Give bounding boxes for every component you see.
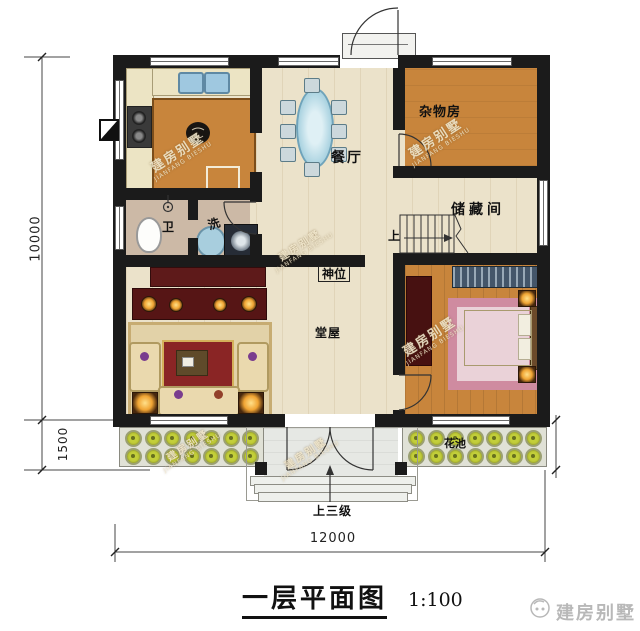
room-label-toilet: 卫 — [162, 221, 174, 233]
floor-plan: 餐厅 杂物房 储藏间 堂屋 神位 卫 洗 花池 上 上三级 10000 1500… — [0, 0, 640, 631]
brand-logo-text: 建房别墅 — [556, 599, 636, 625]
entry-steps-label: 上三级 — [313, 505, 352, 517]
stair-up-label: 上 — [388, 230, 400, 242]
room-label-dining: 餐厅 — [331, 151, 363, 165]
dim-bottom-width: 12000 — [305, 532, 361, 545]
plan-scale: 1:100 — [408, 591, 463, 610]
room-label-storage: 储藏间 — [451, 203, 505, 217]
dim-left-height: 10000 — [30, 211, 43, 267]
dim-left-porch: 1500 — [57, 419, 69, 469]
room-label-utility: 杂物房 — [419, 106, 461, 119]
room-label-flower-bed: 花池 — [444, 438, 466, 449]
room-label-altar: 神位 — [318, 266, 350, 282]
plan-title: 一层平面图 — [242, 586, 387, 619]
room-label-hall: 堂屋 — [315, 327, 341, 339]
